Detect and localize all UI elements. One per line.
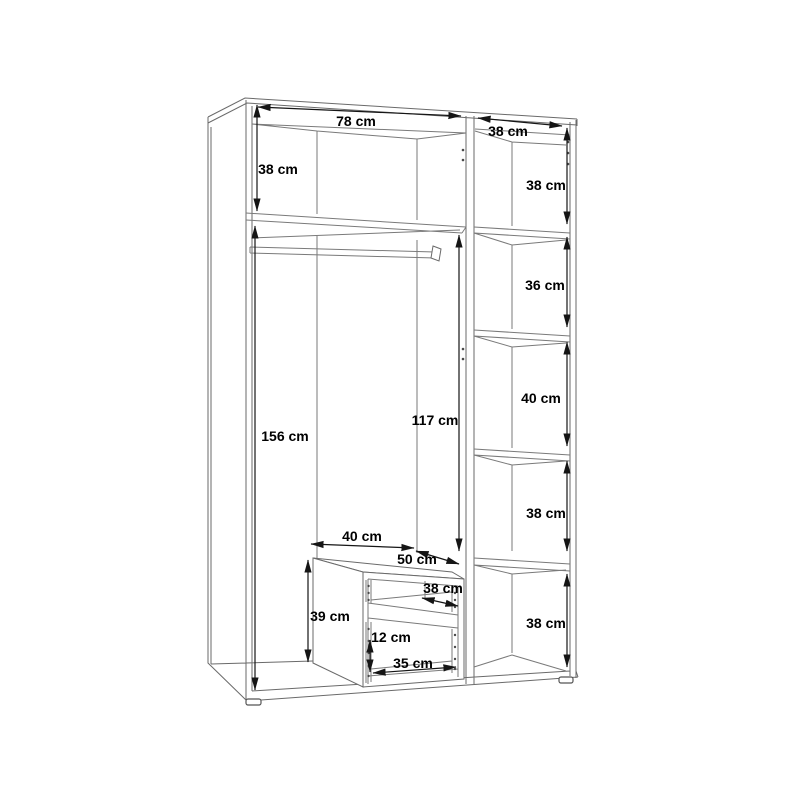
dim-label-right-section-width: 38 cm [488, 123, 528, 139]
left-section [246, 124, 466, 558]
dim-label-drawer-depth: 50 cm [397, 551, 437, 567]
hanging-rail [250, 246, 441, 261]
dim-label-left-section-width: 78 cm [336, 113, 376, 129]
dim-label-middle-clear-height: 117 cm [412, 412, 459, 428]
dim-label-left-hanging-space-height: 156 cm [261, 428, 308, 444]
dim-label-right-shelf-3: 40 cm [521, 390, 561, 406]
dim-label-drawer-unit-height: 39 cm [310, 608, 350, 624]
cabinet-foot-right [559, 677, 573, 683]
wardrobe-dimension-diagram-page: 78 cm 38 cm 38 cm 156 cm 117 cm 38 cm 36… [0, 0, 800, 800]
shelf-pin-holes [462, 141, 570, 361]
dim-label-right-shelf-1: 38 cm [526, 177, 566, 193]
dim-arrow-drawer-width [311, 544, 414, 548]
hanging-rail-end-bracket [431, 246, 441, 261]
dim-label-right-shelf-5: 38 cm [526, 615, 566, 631]
wardrobe-diagram: 78 cm 38 cm 38 cm 156 cm 117 cm 38 cm 36… [0, 0, 800, 800]
dim-label-drawer-bottom-width: 35 cm [393, 655, 433, 671]
dim-label-drawer-opening-height: 12 cm [371, 629, 411, 645]
dim-label-right-shelf-2: 36 cm [525, 277, 565, 293]
cabinet-foot-left [246, 699, 261, 705]
dim-label-drawer-opening-width: 38 cm [423, 580, 463, 596]
dim-label-drawer-width: 40 cm [342, 528, 382, 544]
dim-label-right-shelf-4: 38 cm [526, 505, 566, 521]
dim-label-left-top-shelf-height: 38 cm [258, 161, 298, 177]
